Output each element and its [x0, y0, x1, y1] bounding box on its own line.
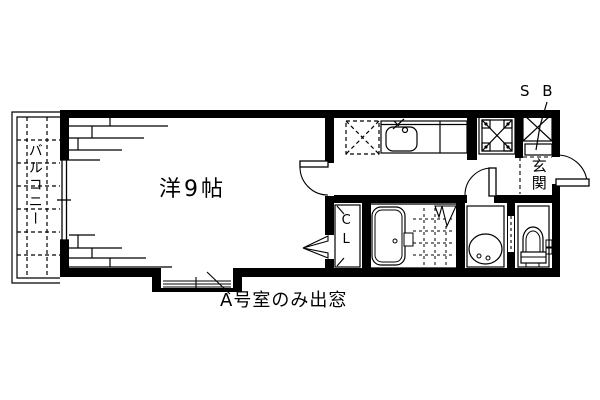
wall-room-divider-mid — [325, 196, 334, 235]
wall-left-bottom — [60, 240, 69, 277]
floorplan-drawing — [0, 0, 600, 400]
lavatory-door-leaf — [489, 168, 496, 196]
entrance-door-swing — [557, 155, 587, 181]
room-door-leaf — [300, 161, 328, 167]
refrigerator-space — [346, 121, 379, 154]
wall-left-top — [60, 110, 69, 160]
closet-label: CL — [339, 213, 353, 251]
lavatory-door — [465, 168, 496, 196]
bath-folding-door — [442, 206, 456, 226]
wall-room-divider-bottom — [325, 259, 334, 277]
bath-faucet-panel — [404, 233, 413, 246]
bay-window-note: A号室のみ出窓 — [220, 292, 347, 311]
wall-right-top — [552, 110, 560, 157]
wall-kitchen-stub — [467, 110, 477, 160]
shoebox-label: S B — [520, 84, 557, 100]
closet-tick-bottom — [337, 258, 344, 266]
floorplan-canvas: 洋9帖 バルコニー 玄関 CL S B A号室のみ出窓 — [0, 0, 600, 400]
wall-bottom-left — [60, 268, 152, 277]
entrance-label: 玄関 — [530, 158, 546, 192]
wall-hatching-bottom — [69, 235, 172, 267]
room-size-label: 洋9帖 — [159, 178, 226, 201]
wall-room-divider-top — [325, 110, 334, 163]
room-door-swing — [300, 167, 328, 195]
closet-folding-door — [303, 248, 328, 258]
basin-drain — [477, 254, 481, 258]
closet-folding-door — [303, 236, 328, 248]
wall-hatching-top — [69, 118, 168, 160]
wash-basin — [469, 234, 502, 264]
bathtub-inner — [375, 210, 402, 262]
kitchen-counter — [381, 119, 467, 153]
wall-hall-a — [334, 195, 467, 203]
toilet-base — [526, 263, 539, 267]
shoebox-leader-line — [536, 102, 547, 150]
shoebox-low-cabinet — [525, 144, 552, 155]
bathroom — [369, 204, 457, 268]
shoebox — [523, 102, 552, 155]
bathtub — [372, 207, 405, 265]
wall-bottom-right — [242, 268, 560, 277]
kitchen-sink — [386, 127, 417, 151]
room-door — [300, 161, 328, 195]
balcony-window — [57, 160, 71, 240]
walls — [60, 110, 560, 292]
wall-hall-b — [494, 195, 560, 203]
toilet-room — [518, 206, 552, 267]
balcony-label: バルコニー — [27, 143, 42, 228]
lavatory — [467, 206, 504, 267]
entrance-door-leaf — [556, 179, 589, 186]
basin-faucet — [486, 256, 490, 260]
bath-folding-door — [435, 206, 442, 217]
lavatory-door-swing — [465, 168, 492, 195]
entrance-door — [556, 155, 589, 186]
toilet-partition — [508, 216, 514, 252]
wall-shoebox-stub — [515, 110, 523, 158]
bathtub-drain — [393, 239, 397, 243]
washing-machine-pan — [479, 117, 515, 154]
